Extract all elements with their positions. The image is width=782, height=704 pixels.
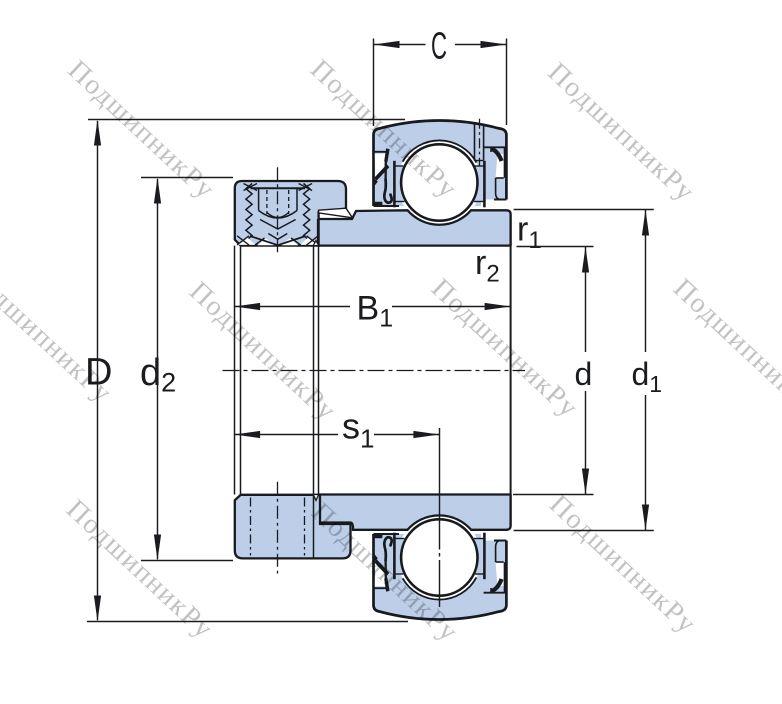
svg-text:d: d [575, 356, 593, 392]
svg-text:C: C [431, 25, 447, 67]
